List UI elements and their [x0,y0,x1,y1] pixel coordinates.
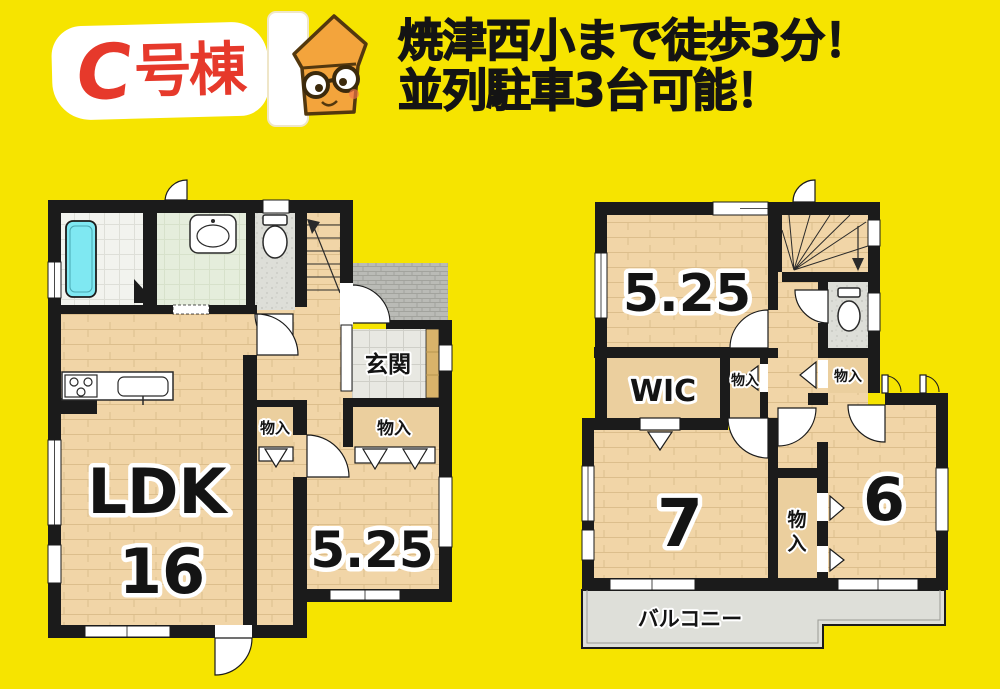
room525-2f-label: 5.25 [623,264,751,324]
building-badge-suffix: 号棟 [133,40,244,101]
storage-bottom-label-char2: 入 [787,533,806,555]
window-icon [868,293,880,331]
window-icon [582,530,594,560]
mascot-eye-left [315,84,323,92]
mascot-eye-right [339,78,347,86]
headline-line2: 並列駐車3台可能！ [398,66,868,116]
ldk-label: LDK [87,455,228,528]
window-icon [610,579,695,590]
storage-bottom-doorway1 [817,493,828,521]
window-icon [936,468,948,531]
shoe-cabinet [426,329,439,398]
window-icon [263,200,289,213]
room6-closet-doors [882,375,939,393]
floor2-plan: 5.25 WIC 物入 物入 7 6 物 入 バルコニー [570,158,970,678]
storage-left-doorway [760,364,768,392]
headline: 焼津西小まで徒歩3分！ 並列駐車3台可能！ [398,16,868,116]
kitchen-counter [62,372,173,405]
storage-left-label: 物入 [731,372,759,389]
mascot-glasses-left [304,73,328,97]
mascot-blush [349,89,359,99]
entrance-label: 玄関 [365,351,411,378]
room6-label: 6 [863,465,905,535]
headline-line1: 焼津西小まで徒歩3分！ [398,16,868,66]
washroom-sliding-door [173,305,209,314]
window-icon [48,545,61,583]
flyer-page: C 号棟 焼津西小まで徒歩3分！ 並列駐車3台可能！ [0,0,1000,689]
storage-right-doorway [818,360,828,388]
building-badge-letter: C [72,34,136,112]
staircase2 [782,215,868,272]
toilet2-icon [838,288,860,331]
washroom-exterior-door-arc [165,180,187,200]
entrance-step [341,325,352,391]
window-icon [85,626,170,637]
room7-label: 7 [657,485,703,562]
ldk-terrace-doorway [215,625,252,638]
storage-hall-label: 物入 [260,419,290,437]
sink-icon [190,215,236,253]
window-icon [868,220,880,246]
mascot-glasses-right [334,67,358,91]
ldk-size-label: 16 [119,535,205,608]
house-mascot-icon [258,8,373,133]
balcony [582,590,945,648]
ldk-terrace-door-arc [215,638,252,675]
storage-bottom-doorway2 [817,546,828,572]
window-icon [439,345,452,371]
balcony-label: バルコニー [638,607,743,631]
stairs-top-door-arc [793,180,815,202]
staircase [307,213,342,307]
toilet-icon [263,215,287,258]
storage-room-label: 物入 [377,418,411,439]
room525-label: 5.25 [310,521,433,579]
wic-door [640,418,680,430]
building-badge: C 号棟 [51,21,269,121]
floor1-plan: LDK 16 5.25 玄関 物入 物入 [30,175,460,685]
storage-bottom-label-char1: 物 [787,508,806,531]
wic-label: WIC [630,374,696,409]
storage-right-label: 物入 [834,368,862,385]
window-icon [439,477,452,547]
entrance-door-leaf [340,283,353,327]
